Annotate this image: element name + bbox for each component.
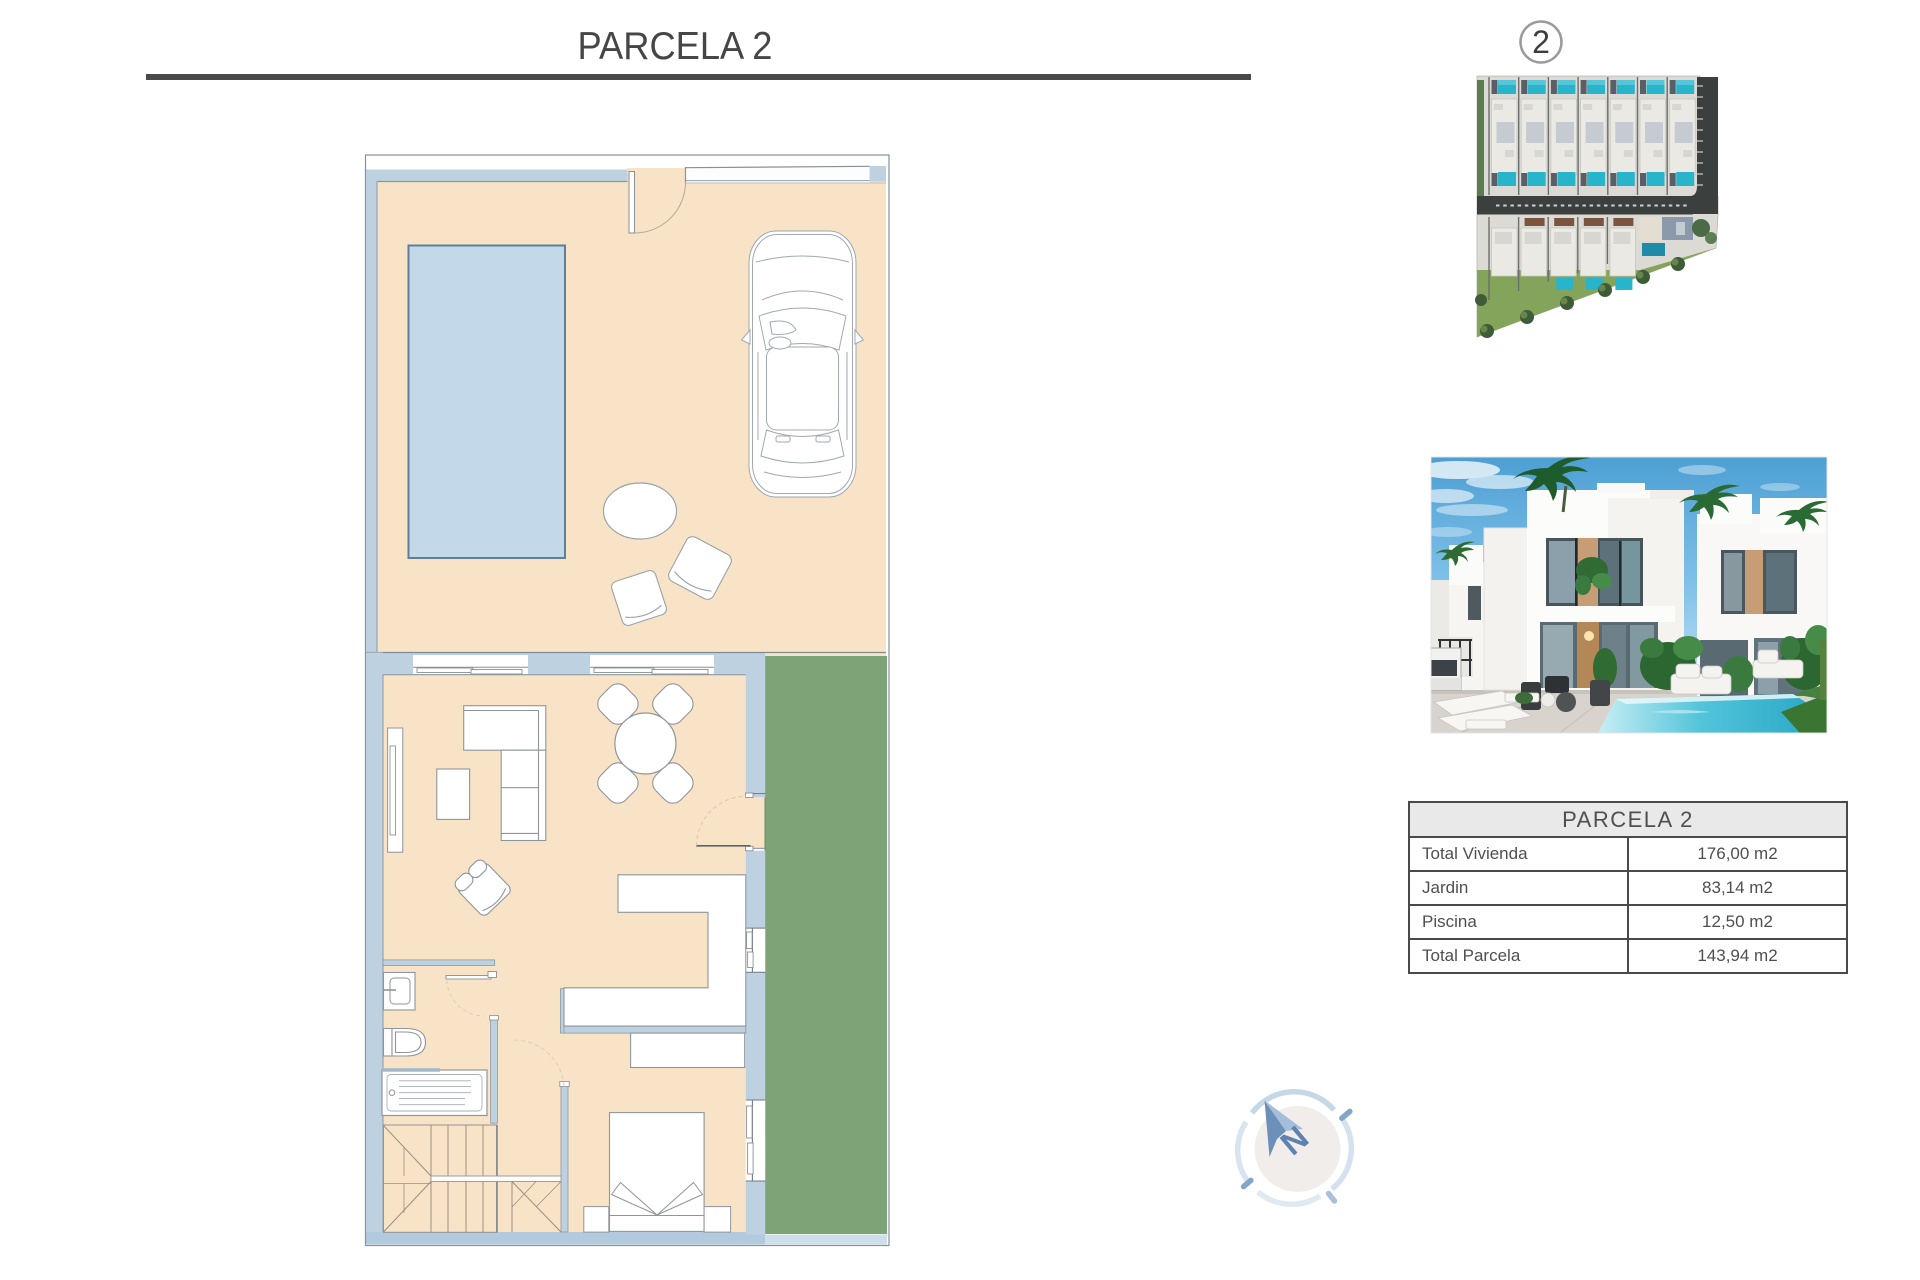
svg-text:2: 2 [1532, 24, 1550, 60]
